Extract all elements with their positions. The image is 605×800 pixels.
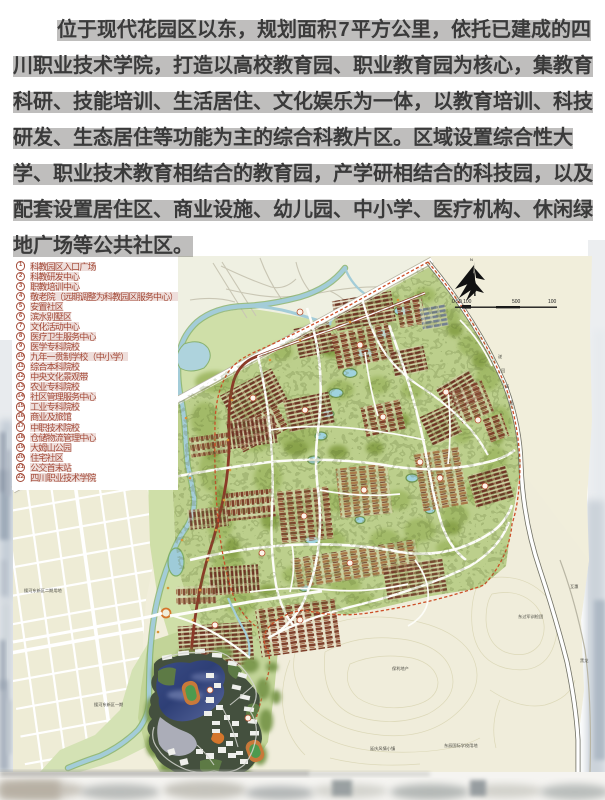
svg-text:东过军训检团: 东过军训检团 [518, 613, 543, 620]
svg-text:100: 100 [548, 299, 557, 305]
svg-text:援河东新区二期用地: 援河东新区二期用地 [24, 587, 63, 594]
svg-text:黑龙: 黑龙 [580, 657, 589, 664]
svg-text:互惠: 互惠 [570, 583, 578, 589]
svg-text:0 50 100: 0 50 100 [452, 299, 472, 305]
svg-text:东辰国际学校用地: 东辰国际学校用地 [444, 742, 478, 749]
svg-text:延庆风情小镇: 延庆风情小镇 [370, 745, 395, 752]
svg-text:高: 高 [505, 383, 509, 390]
svg-text:保利地产: 保利地产 [392, 665, 409, 672]
svg-text:援河东新区一期: 援河东新区一期 [94, 701, 123, 708]
svg-text:500: 500 [512, 299, 521, 305]
